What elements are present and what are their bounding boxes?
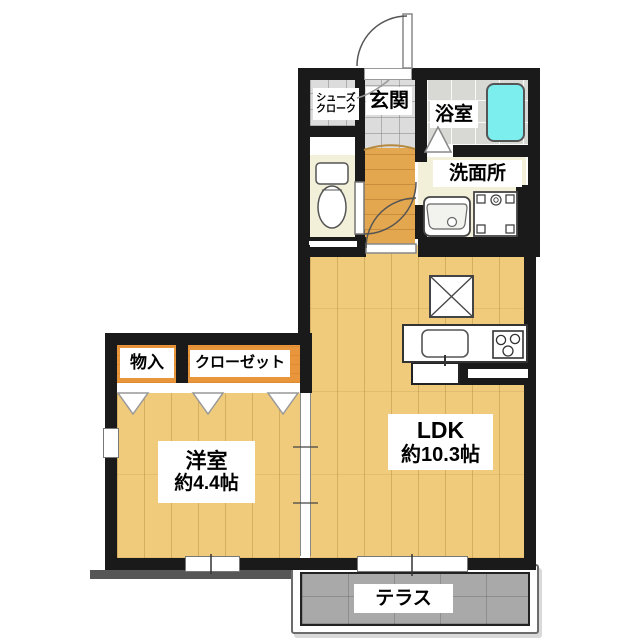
terrace-sliding-door bbox=[357, 556, 468, 572]
kitchen-hatch-opening bbox=[468, 369, 528, 378]
washroom-label: 洗面所 bbox=[433, 160, 522, 187]
western-room-name: 洋室 bbox=[186, 450, 228, 474]
shoes-cloak-bottom-wall bbox=[310, 126, 365, 137]
bathroom-label: 浴室 bbox=[430, 101, 478, 128]
entrance-door-sill bbox=[364, 68, 412, 80]
toilet-floor bbox=[310, 155, 355, 237]
western-room-label: 洋室 約4.4帖 bbox=[158, 441, 255, 503]
closet-label: クローゼット bbox=[190, 350, 290, 377]
ldk-name: LDK bbox=[417, 418, 464, 444]
ldk-size: 約10.3帖 bbox=[401, 444, 480, 466]
bottom-wall bbox=[105, 558, 536, 570]
toilet-bottom-wall-slit bbox=[309, 241, 357, 247]
washroom-bottom-wall bbox=[418, 237, 540, 257]
storage-label: 物入 bbox=[120, 348, 174, 378]
upper-left-wall bbox=[298, 68, 310, 257]
closet-right-wall bbox=[300, 333, 312, 393]
shoes-cloak-label: シューズ クローク bbox=[313, 88, 359, 120]
storage-closet-divider-wall bbox=[176, 345, 188, 383]
bathroom-bottom-wall-left bbox=[415, 145, 425, 157]
closet-door-track bbox=[117, 383, 300, 393]
upper-right-wall bbox=[528, 68, 540, 188]
floor-plan: シューズ クローク 玄関 浴室 洗面所 物入 クローゼット 洋室 約4.4帖 L… bbox=[0, 0, 640, 640]
entrance-right-wall-lower bbox=[415, 205, 427, 239]
hallway-floor bbox=[363, 148, 415, 245]
kitchen-cabinet bbox=[411, 362, 460, 385]
ldk-left-wall bbox=[298, 245, 310, 345]
western-room-left-window bbox=[103, 428, 119, 458]
top-wall-right bbox=[412, 68, 540, 80]
ldk-floor bbox=[310, 245, 524, 558]
shoes-cloak-label-line1: シューズ bbox=[316, 93, 356, 104]
ldk-label: LDK 約10.3帖 bbox=[388, 414, 493, 470]
western-room-bottom-window bbox=[185, 556, 240, 572]
western-room-size: 約4.4帖 bbox=[174, 473, 238, 494]
terrace-label: テラス bbox=[354, 584, 453, 613]
bathroom-bottom-wall-right bbox=[453, 145, 528, 157]
entrance-door bbox=[357, 14, 412, 68]
entrance-label: 玄関 bbox=[366, 87, 412, 115]
closet-top-wall bbox=[105, 333, 312, 345]
western-ldk-sliding-partition bbox=[300, 393, 311, 556]
shoes-cloak-label-line2: クローク bbox=[316, 104, 356, 115]
ldk-right-wall bbox=[524, 245, 536, 570]
